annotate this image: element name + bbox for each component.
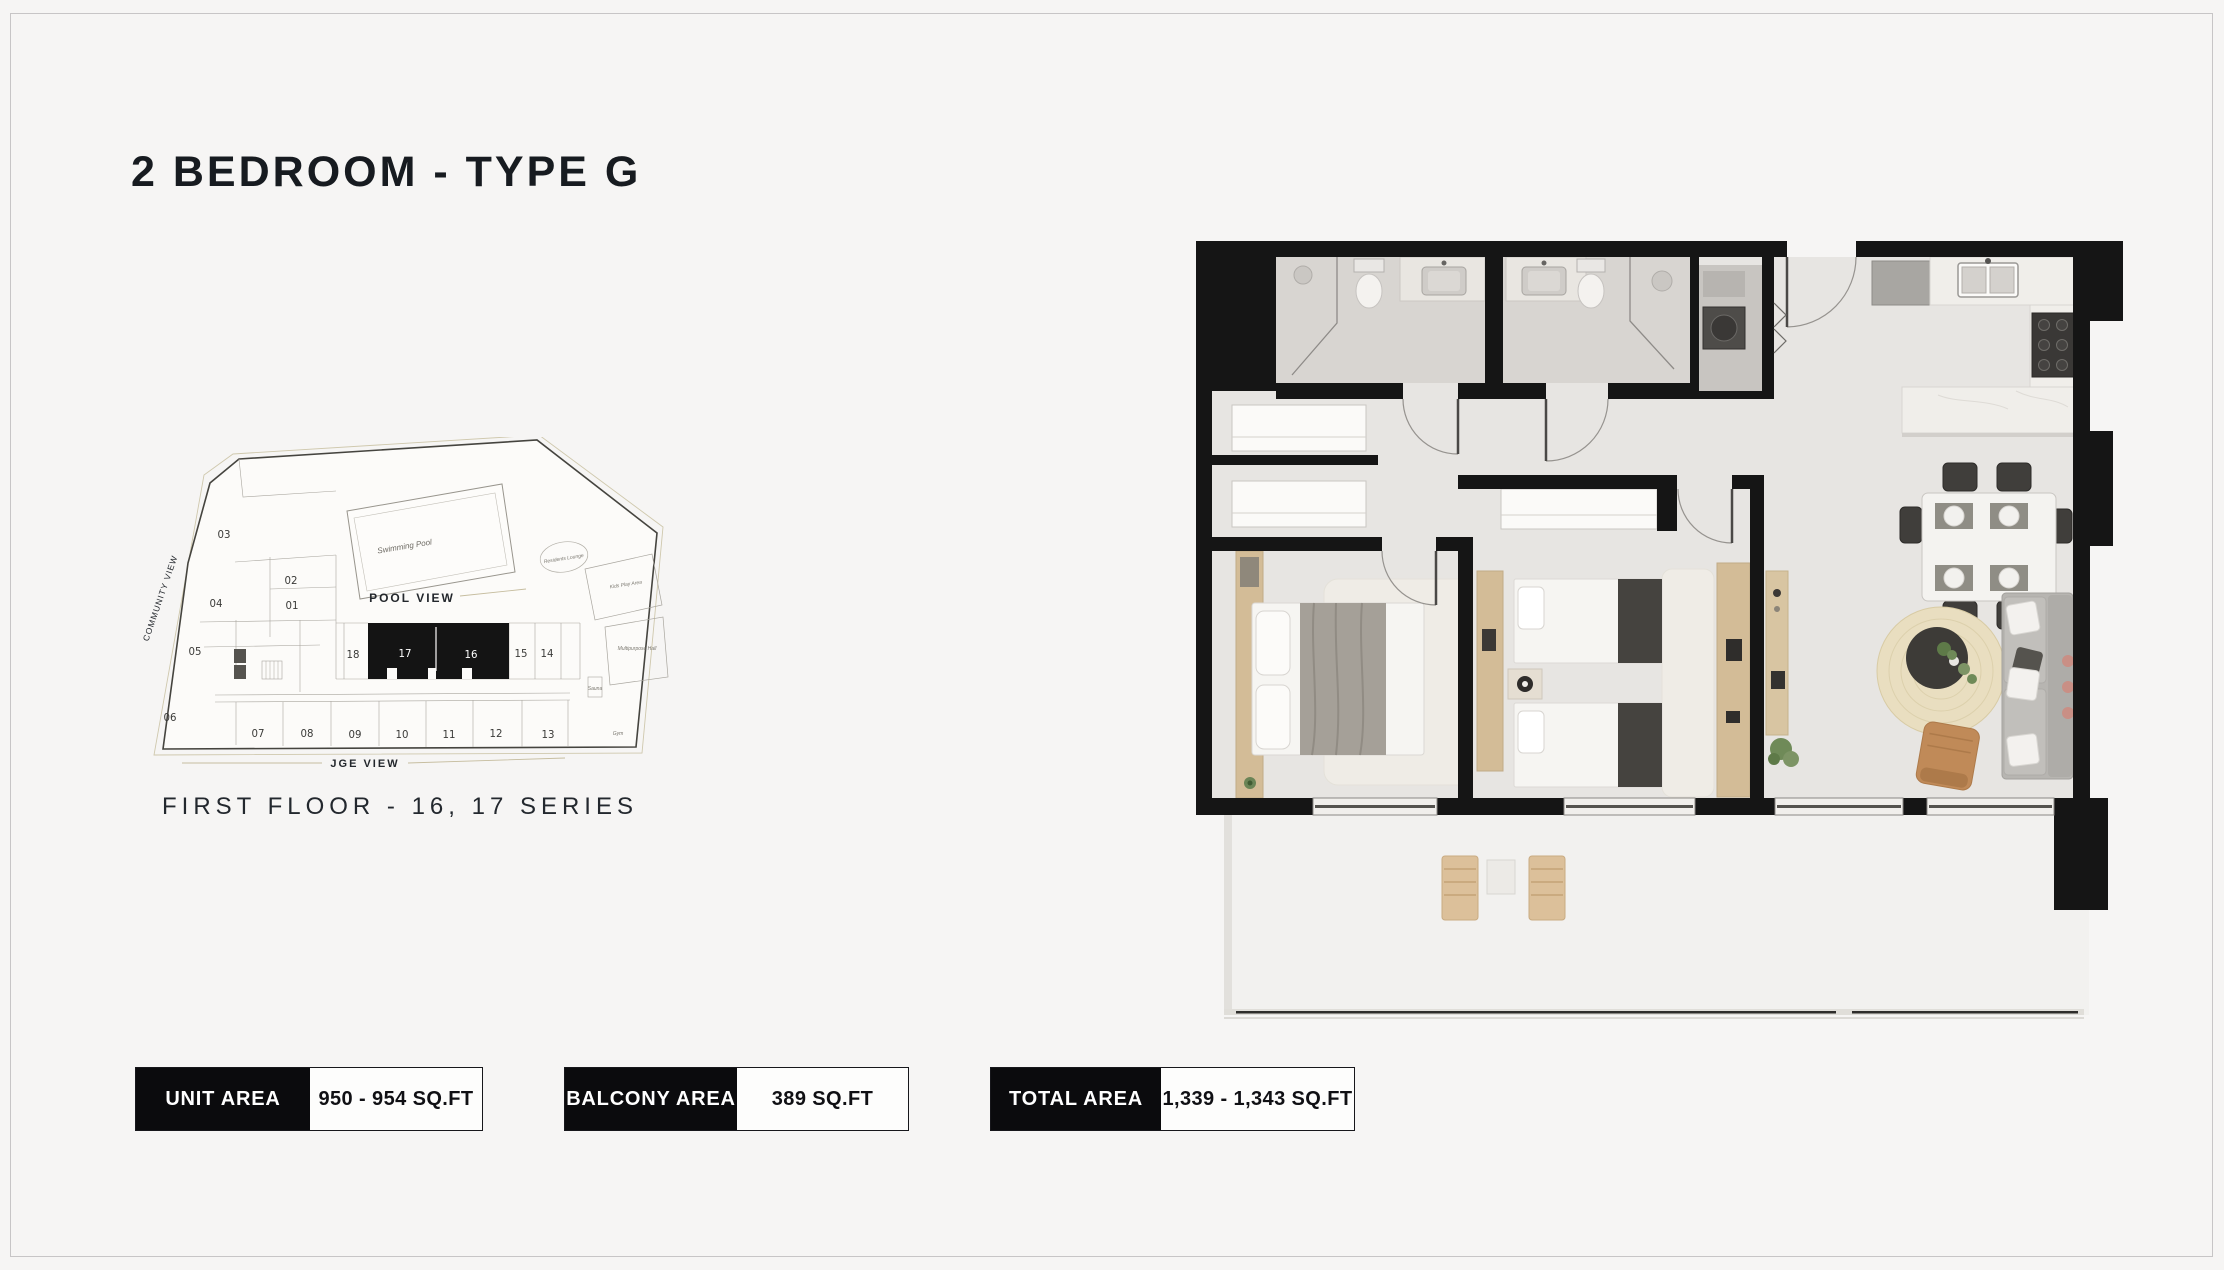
unit-14: 14 <box>541 649 554 660</box>
floor-caption: FIRST FLOOR - 16, 17 SERIES <box>130 793 670 821</box>
unit-10: 10 <box>396 730 409 741</box>
jge-view-label: JGE VIEW <box>330 758 399 769</box>
faucet <box>1542 261 1547 266</box>
shower-head <box>1294 266 1312 284</box>
unit-area-value: 950 - 954 SQ.FT <box>310 1068 482 1130</box>
window <box>1313 798 1437 815</box>
balcony-table <box>1487 860 1515 894</box>
page-title: 2 BEDROOM - TYPE G <box>131 148 641 197</box>
throw-cushion <box>2062 707 2074 719</box>
washer-closet <box>1703 271 1745 349</box>
unit-13: 13 <box>542 730 555 741</box>
decor <box>1773 589 1781 597</box>
unit-02: 02 <box>285 576 298 587</box>
dresser-strip <box>1477 571 1503 771</box>
unit-06: 06 <box>164 713 177 724</box>
unit-08: 08 <box>301 729 314 740</box>
lamp-top <box>1522 681 1528 687</box>
sink-basin <box>1428 271 1460 291</box>
decor <box>1771 671 1785 689</box>
decor <box>1482 629 1496 651</box>
window <box>1927 798 2054 815</box>
unit-15: 15 <box>515 649 528 660</box>
gym-label: Gym <box>613 731 624 737</box>
unit-01: 01 <box>286 601 299 612</box>
pillow <box>1518 587 1544 629</box>
pillow <box>1256 685 1290 749</box>
decor <box>1726 711 1740 723</box>
balcony-area-value: 389 SQ.FT <box>737 1068 908 1130</box>
pillow <box>1256 611 1290 675</box>
unit-07: 07 <box>252 729 265 740</box>
sauna-label: Sauna <box>588 686 603 692</box>
unit-05: 05 <box>189 647 202 658</box>
shelf <box>1703 271 1745 297</box>
faucet <box>1442 261 1447 266</box>
balcony-chair <box>1529 856 1565 920</box>
toilet <box>1577 259 1605 272</box>
sofa-pillow <box>2006 601 2041 636</box>
decor <box>1774 606 1780 612</box>
bedroom2-wardrobe <box>1501 489 1657 529</box>
bed-runner <box>1618 703 1662 787</box>
unit-16-highlighted: 16 <box>465 650 478 661</box>
sink-basin <box>1990 267 2014 293</box>
wardrobe-strip <box>1717 563 1750 797</box>
sink-basin <box>1962 267 1986 293</box>
toilet-bowl <box>1578 274 1604 308</box>
highlighted-units-block <box>368 623 509 679</box>
unit-18: 18 <box>347 650 360 661</box>
unit-area-label: UNIT AREA <box>136 1068 310 1130</box>
toilet-bowl <box>1356 274 1382 308</box>
shower-head <box>1652 271 1672 291</box>
kitchen-cabinet <box>1872 261 1930 305</box>
counter-shadow <box>1902 433 2074 437</box>
unit-floor-plan <box>1196 241 2126 1036</box>
window <box>1775 798 1903 815</box>
pool-view-label: POOL VIEW <box>369 591 455 605</box>
sofa <box>2002 593 2074 779</box>
throw-cushion <box>2062 655 2074 667</box>
bed-runner <box>1618 579 1662 663</box>
plant-center <box>1248 781 1253 786</box>
balcony-chair <box>1442 856 1478 920</box>
unit-09: 09 <box>349 730 362 741</box>
balcony-area-box: BALCONY AREA 389 SQ.FT <box>564 1067 909 1131</box>
total-area-label: TOTAL AREA <box>991 1068 1161 1130</box>
unit-area-box: UNIT AREA 950 - 954 SQ.FT <box>135 1067 483 1131</box>
lounge-chair <box>1915 721 1981 792</box>
multipurpose-hall-label: Multipurpose Hall <box>618 646 658 652</box>
toilet <box>1354 259 1384 272</box>
washer-door <box>1711 315 1737 341</box>
sofa-pillow <box>2006 733 2039 766</box>
balcony-area-label: BALCONY AREA <box>565 1068 737 1130</box>
master-closet <box>1232 481 1366 527</box>
coffee-table <box>1906 627 1968 689</box>
decor <box>1726 639 1742 661</box>
faucet <box>1985 258 1991 264</box>
pillow <box>1518 711 1544 753</box>
kitchen-peninsula <box>1902 387 2074 433</box>
dresser <box>1240 557 1259 587</box>
bedroom-rug <box>1662 569 1714 797</box>
window <box>1564 798 1695 815</box>
windows <box>1313 798 2054 815</box>
unit-03: 03 <box>218 530 231 541</box>
total-area-box: TOTAL AREA 1,339 - 1,343 SQ.FT <box>990 1067 1355 1131</box>
sofa-pillow <box>2006 667 2040 701</box>
brochure-page: 2 BEDROOM - TYPE G <box>0 0 2224 1270</box>
community-view-label: COMMUNITY VIEW <box>141 554 180 643</box>
unit-17-highlighted: 17 <box>399 649 412 660</box>
unit-12: 12 <box>490 729 503 740</box>
balcony-railing <box>1224 1009 2084 1019</box>
unit-11: 11 <box>443 730 456 741</box>
hall-closet <box>1232 405 1366 451</box>
unit-04: 04 <box>210 599 223 610</box>
total-area-value: 1,339 - 1,343 SQ.FT <box>1161 1068 1354 1130</box>
throw-cushion <box>2062 681 2074 693</box>
key-plan: 01 02 03 04 05 06 07 08 09 10 11 12 13 1… <box>140 437 700 769</box>
sink-basin <box>1528 271 1560 291</box>
